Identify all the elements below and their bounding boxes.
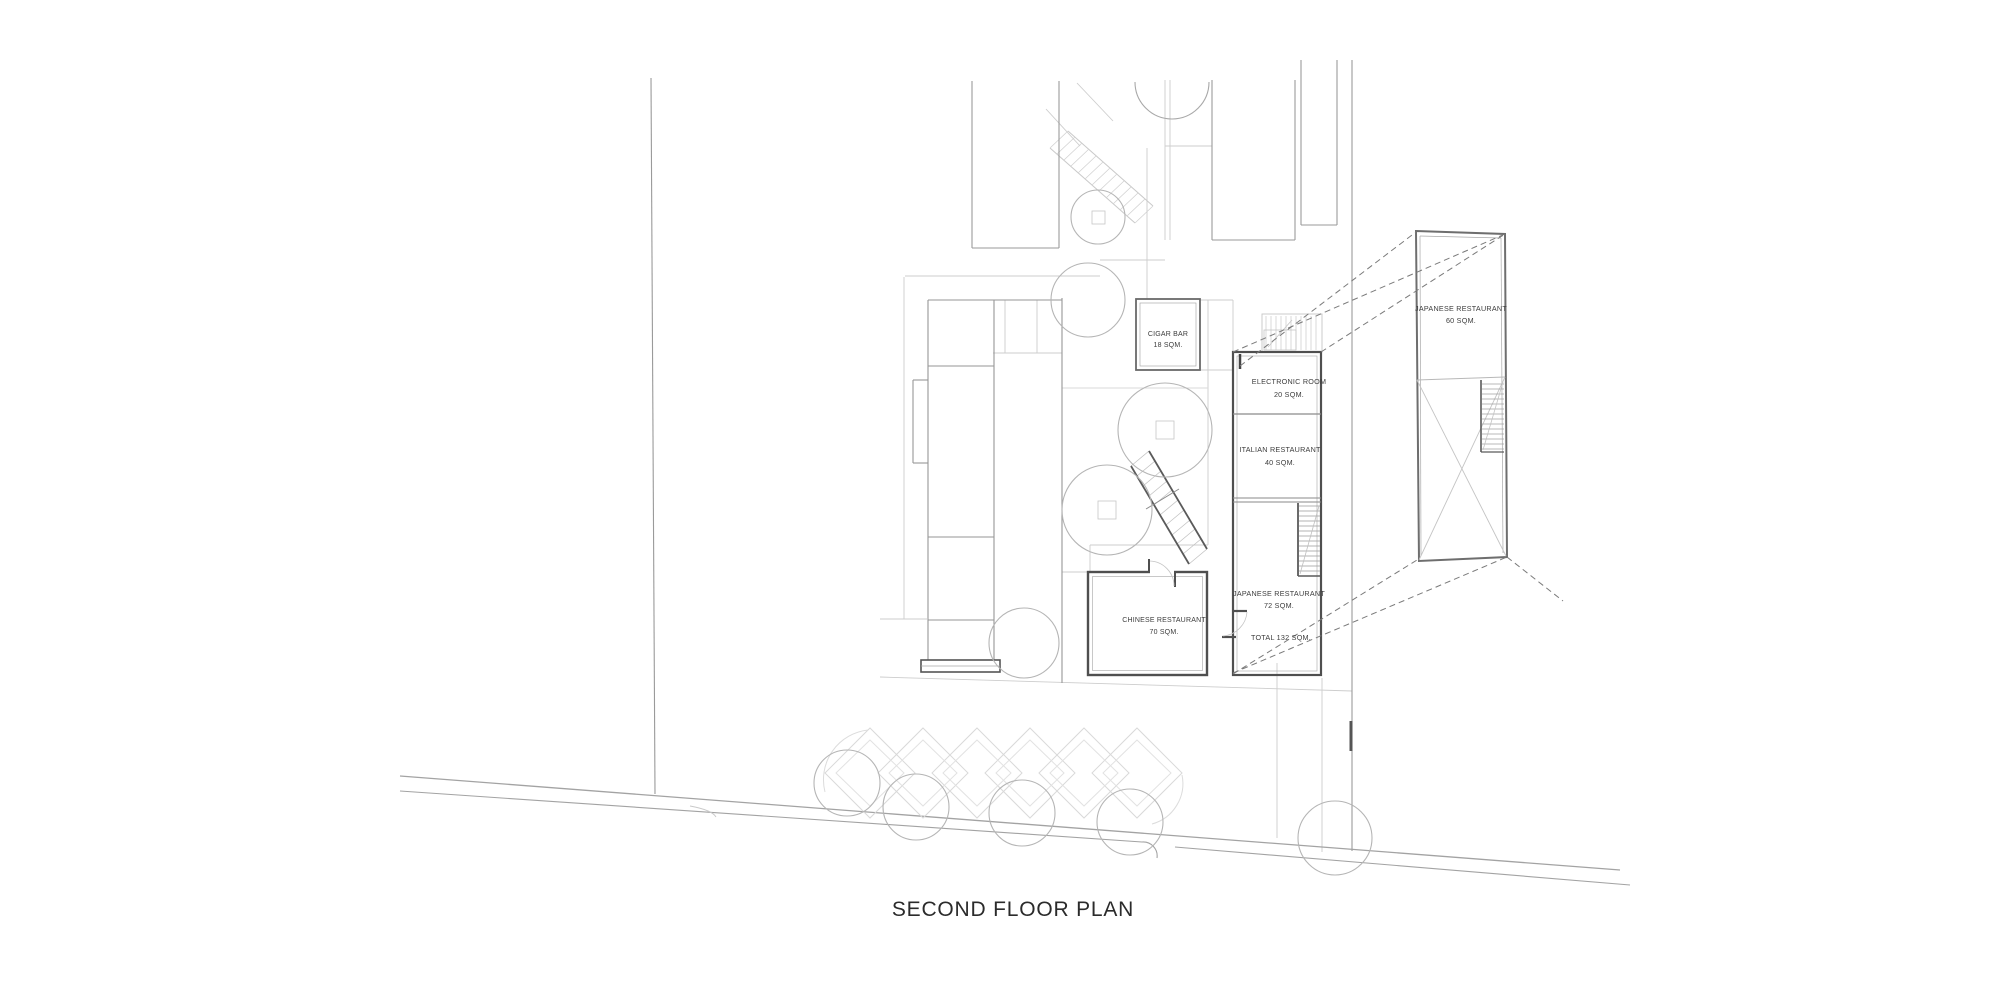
annex-japanese-restaurant (1416, 231, 1507, 561)
arc-canopy (1135, 82, 1209, 119)
site-boundary-left (651, 78, 655, 794)
label-electronic-area: 20 SQM. (1274, 390, 1304, 399)
tree (989, 608, 1059, 678)
tree (1071, 190, 1125, 244)
tree (1062, 465, 1152, 555)
roads (400, 776, 1630, 885)
tree (883, 774, 949, 840)
tree (989, 780, 1055, 846)
tree (1298, 801, 1372, 875)
upper-ramp (1050, 131, 1153, 223)
door-swing (1223, 612, 1247, 636)
label-japanese60-area: 60 SQM. (1446, 316, 1476, 325)
upper-exterior-stair (1262, 314, 1322, 352)
label-japanese72-area: 72 SQM. (1264, 601, 1294, 610)
terrace-stair (1131, 451, 1207, 564)
plan-title: SECOND FLOOR PLAN (892, 898, 1134, 921)
road-edge-upper (400, 776, 1620, 870)
label-cigar-bar-name: CIGAR BAR (1148, 331, 1188, 338)
label-total: TOTAL 132 SQM. (1251, 633, 1311, 642)
label-chinese-area: 70 SQM. (1149, 629, 1178, 636)
label-japanese72-name: JAPANESE RESTAURANT (1233, 589, 1325, 598)
label-chinese-name: CHINESE RESTAURANT (1122, 617, 1206, 624)
label-japanese60-name: JAPANESE RESTAURANT (1415, 304, 1507, 313)
road-edge-lower-left (400, 791, 1157, 858)
site-boundaries (651, 60, 1352, 851)
main-room-block (1222, 352, 1321, 675)
label-italian-name: ITALIAN RESTAURANT (1239, 445, 1321, 454)
label-electronic-name: ELECTRONIC ROOM (1252, 377, 1326, 386)
left-building (913, 298, 1062, 683)
floor-plan-drawing: CIGAR BAR 18 SQM. ELECTRONIC ROOM 20 SQM… (0, 0, 2000, 1000)
parking-canopies (823, 728, 1182, 824)
label-cigar-bar-area: 18 SQM. (1153, 342, 1182, 349)
tree (1118, 383, 1212, 477)
floor-plan-page: CIGAR BAR 18 SQM. ELECTRONIC ROOM 20 SQM… (0, 0, 2000, 1000)
label-italian-area: 40 SQM. (1265, 458, 1295, 467)
neighbour-buildings (972, 60, 1337, 248)
